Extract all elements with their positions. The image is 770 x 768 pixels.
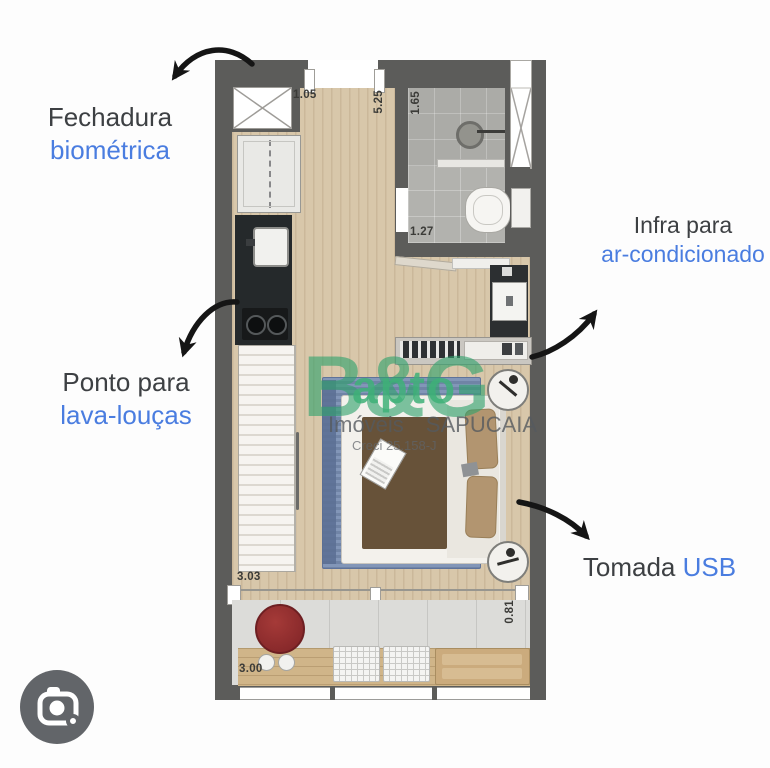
- fridge-outline: [243, 141, 295, 207]
- dim-balcony-depth: 0.81: [504, 600, 516, 624]
- dim-room-depth: 5.25: [373, 90, 385, 114]
- dim-bath-width: 1.65: [410, 91, 422, 115]
- dim-wardrobe-wall: 3.03: [237, 571, 261, 583]
- shower-head-icon: [456, 121, 484, 149]
- ac-cabinet: [490, 265, 528, 340]
- label-line-blue: lava-louças: [41, 399, 211, 432]
- kitchen-sink: [253, 227, 289, 267]
- pillow: [464, 408, 498, 470]
- right-wall: [530, 60, 546, 700]
- google-lens-camera-icon: [20, 670, 94, 744]
- left-wall: [215, 132, 232, 700]
- decor-item: [502, 343, 512, 355]
- console-shelf: [395, 337, 532, 365]
- x-cross-icon: [234, 88, 291, 128]
- floor-plan: 1.05 5.25 1.65 1.27 3.03 3.00 0.81: [215, 60, 546, 700]
- kitchen-counter: [235, 215, 292, 345]
- label-line-blue: biométrica: [25, 134, 195, 167]
- book-row: [400, 341, 460, 358]
- label-biometric-lock: Fechadura biométrica: [25, 101, 195, 168]
- shower-arm: [477, 130, 505, 133]
- duct-niche: [510, 60, 532, 169]
- fridge: [237, 135, 301, 213]
- burner-icon: [267, 315, 287, 335]
- label-line-blue: USB: [683, 552, 736, 582]
- x-cross-icon: [511, 61, 531, 168]
- entry-door-opening: [308, 60, 378, 88]
- bathroom-door-opening: [396, 188, 408, 232]
- bathroom-bottom-wall: [395, 243, 546, 257]
- dim-entry-width: 1.05: [293, 89, 317, 101]
- red-table: [255, 604, 305, 654]
- toilet-seat: [473, 195, 503, 225]
- wardrobe-handle: [296, 432, 299, 510]
- pillow: [465, 475, 498, 538]
- label-ac-infra: Infra para ar-condicionado: [593, 211, 770, 270]
- lamp-head-icon: [509, 375, 518, 384]
- cabinet-item: [502, 267, 512, 276]
- lounge-mat: [383, 646, 430, 682]
- cooktop: [242, 308, 288, 340]
- bench: [435, 648, 530, 685]
- shower-ledge: [437, 159, 505, 168]
- tank-faucet: [506, 296, 513, 306]
- label-line-black: Ponto para: [41, 366, 211, 399]
- headboard: [500, 398, 506, 558]
- laptop-keys: [365, 457, 394, 484]
- screenshot: { "annotations": { "biometric_lock": { "…: [0, 0, 770, 768]
- burner-icon: [246, 315, 266, 335]
- label-usb-outlet: Tomada USB: [562, 551, 757, 584]
- side-table: [487, 369, 529, 411]
- headboard-gadget: [461, 462, 479, 478]
- bench-cushion: [442, 668, 522, 679]
- lounge-mat: [333, 646, 380, 682]
- dim-balcony-width: 3.00: [239, 663, 263, 675]
- sink-faucet: [246, 239, 255, 246]
- label-line-black: Infra para: [593, 211, 770, 240]
- shaft-x-box: [233, 87, 292, 129]
- decor-item: [515, 343, 523, 355]
- lamp-head-icon: [506, 548, 515, 557]
- window: [240, 687, 330, 700]
- side-table: [487, 541, 529, 583]
- laundry-tank: [492, 282, 527, 321]
- bed-foot-bench: [322, 380, 336, 564]
- bench-cushion: [442, 654, 522, 665]
- window: [437, 687, 530, 700]
- stool: [278, 654, 295, 671]
- label-dishwasher-point: Ponto para lava-louças: [41, 366, 211, 433]
- lamp-arm-icon: [497, 557, 519, 566]
- cistern-shelf: [511, 188, 531, 228]
- wardrobe: [238, 345, 296, 572]
- label-line-black: Fechadura: [25, 101, 195, 134]
- label-line-blue: ar-condicionado: [593, 240, 770, 269]
- dim-bath-depth: 1.27: [410, 226, 434, 238]
- google-lens-button[interactable]: [20, 670, 94, 744]
- top-wall-segment: [378, 60, 510, 88]
- shower-area: [408, 88, 505, 166]
- window: [335, 687, 432, 700]
- label-line-black: Tomada: [583, 552, 676, 582]
